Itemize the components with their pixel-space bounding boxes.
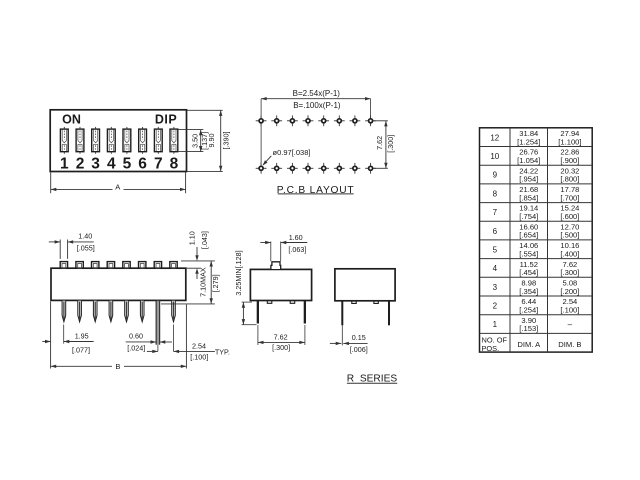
svg-text:[.554]: [.554]	[519, 249, 538, 258]
svg-text:[.063]: [.063]	[288, 245, 306, 254]
svg-text:7.62: 7.62	[274, 332, 288, 341]
svg-text:[.900]: [.900]	[560, 156, 579, 165]
svg-text:1.60: 1.60	[289, 233, 303, 242]
svg-text:7: 7	[154, 156, 163, 173]
svg-text:[.954]: [.954]	[519, 175, 538, 184]
svg-text:B: B	[115, 362, 120, 371]
svg-text:B=2.54x(P-1): B=2.54x(P-1)	[293, 89, 341, 98]
svg-text:[.754]: [.754]	[519, 212, 538, 221]
svg-text:7: 7	[493, 208, 498, 217]
svg-text:7.10MAX: 7.10MAX	[198, 267, 207, 297]
svg-text:12: 12	[490, 133, 499, 142]
svg-text:[.700]: [.700]	[560, 193, 579, 202]
svg-text:POS.: POS.	[482, 344, 500, 353]
svg-text:ON: ON	[62, 113, 81, 127]
svg-text:[.300]: [.300]	[560, 268, 579, 277]
svg-text:10: 10	[490, 152, 499, 161]
svg-text:[.654]: [.654]	[519, 231, 538, 240]
svg-text:[.390]: [.390]	[221, 132, 230, 150]
svg-text:0.60: 0.60	[129, 332, 143, 341]
svg-text:[1.254]: [1.254]	[517, 137, 540, 146]
svg-text:–: –	[568, 320, 573, 329]
svg-text:[.300]: [.300]	[386, 135, 395, 153]
svg-text:[.024]: [.024]	[127, 344, 145, 353]
svg-text:9: 9	[493, 171, 498, 180]
svg-text:R SERIES: R SERIES	[347, 373, 398, 384]
svg-text:2.54: 2.54	[192, 342, 206, 351]
svg-text:A: A	[115, 183, 120, 192]
svg-text:6: 6	[138, 156, 147, 173]
svg-text:2: 2	[493, 302, 498, 311]
svg-text:[.200]: [.200]	[560, 287, 579, 296]
svg-text:[.100]: [.100]	[560, 306, 579, 315]
svg-text:B=.100x(P-1): B=.100x(P-1)	[293, 101, 341, 110]
svg-text:[.077]: [.077]	[72, 345, 90, 354]
svg-text:4: 4	[107, 156, 116, 173]
svg-text:DIM. A: DIM. A	[517, 340, 541, 349]
svg-text:[.006]: [.006]	[350, 345, 368, 354]
svg-text:3.50: 3.50	[190, 134, 199, 148]
svg-text:[1.100]: [1.100]	[558, 137, 581, 146]
svg-text:6: 6	[493, 227, 498, 236]
svg-text:[.400]: [.400]	[560, 249, 579, 258]
svg-text:1: 1	[60, 156, 69, 173]
svg-text:8: 8	[170, 156, 179, 173]
svg-text:[.600]: [.600]	[560, 212, 579, 221]
svg-text:8: 8	[493, 189, 498, 198]
svg-text:9.90: 9.90	[207, 134, 216, 148]
svg-text:[.055]: [.055]	[77, 243, 95, 252]
svg-text:[.279]: [.279]	[211, 274, 220, 292]
svg-text:[.854]: [.854]	[519, 193, 538, 202]
svg-text:TYP.: TYP.	[215, 348, 230, 357]
svg-text:[.043]: [.043]	[200, 231, 209, 249]
svg-text:[.254]: [.254]	[519, 306, 538, 315]
svg-text:DIM. B: DIM. B	[558, 340, 581, 349]
svg-text:1.10: 1.10	[188, 231, 197, 245]
svg-text:ø0.97[.038]: ø0.97[.038]	[273, 148, 311, 157]
svg-text:3: 3	[91, 156, 100, 173]
svg-text:[.500]: [.500]	[560, 231, 579, 240]
svg-text:DIP: DIP	[155, 113, 177, 127]
svg-text:[.300]: [.300]	[272, 343, 290, 352]
svg-text:1.95: 1.95	[75, 332, 89, 341]
svg-text:[.800]: [.800]	[560, 175, 579, 184]
svg-text:3.25MIN[.128]: 3.25MIN[.128]	[234, 250, 243, 295]
svg-text:3: 3	[493, 283, 498, 292]
svg-text:7.62: 7.62	[375, 136, 384, 150]
svg-text:[.100]: [.100]	[190, 353, 208, 362]
svg-text:[.354]: [.354]	[519, 287, 538, 296]
svg-text:[.454]: [.454]	[519, 268, 538, 277]
svg-text:1.40: 1.40	[78, 232, 92, 241]
svg-text:5: 5	[123, 156, 132, 173]
svg-text:0.15: 0.15	[352, 333, 366, 342]
svg-text:[1.054]: [1.054]	[517, 156, 540, 165]
svg-text:5: 5	[493, 246, 498, 255]
svg-text:[.153]: [.153]	[519, 324, 538, 333]
svg-text:1: 1	[493, 320, 498, 329]
svg-text:2: 2	[76, 156, 85, 173]
svg-text:4: 4	[493, 264, 498, 273]
